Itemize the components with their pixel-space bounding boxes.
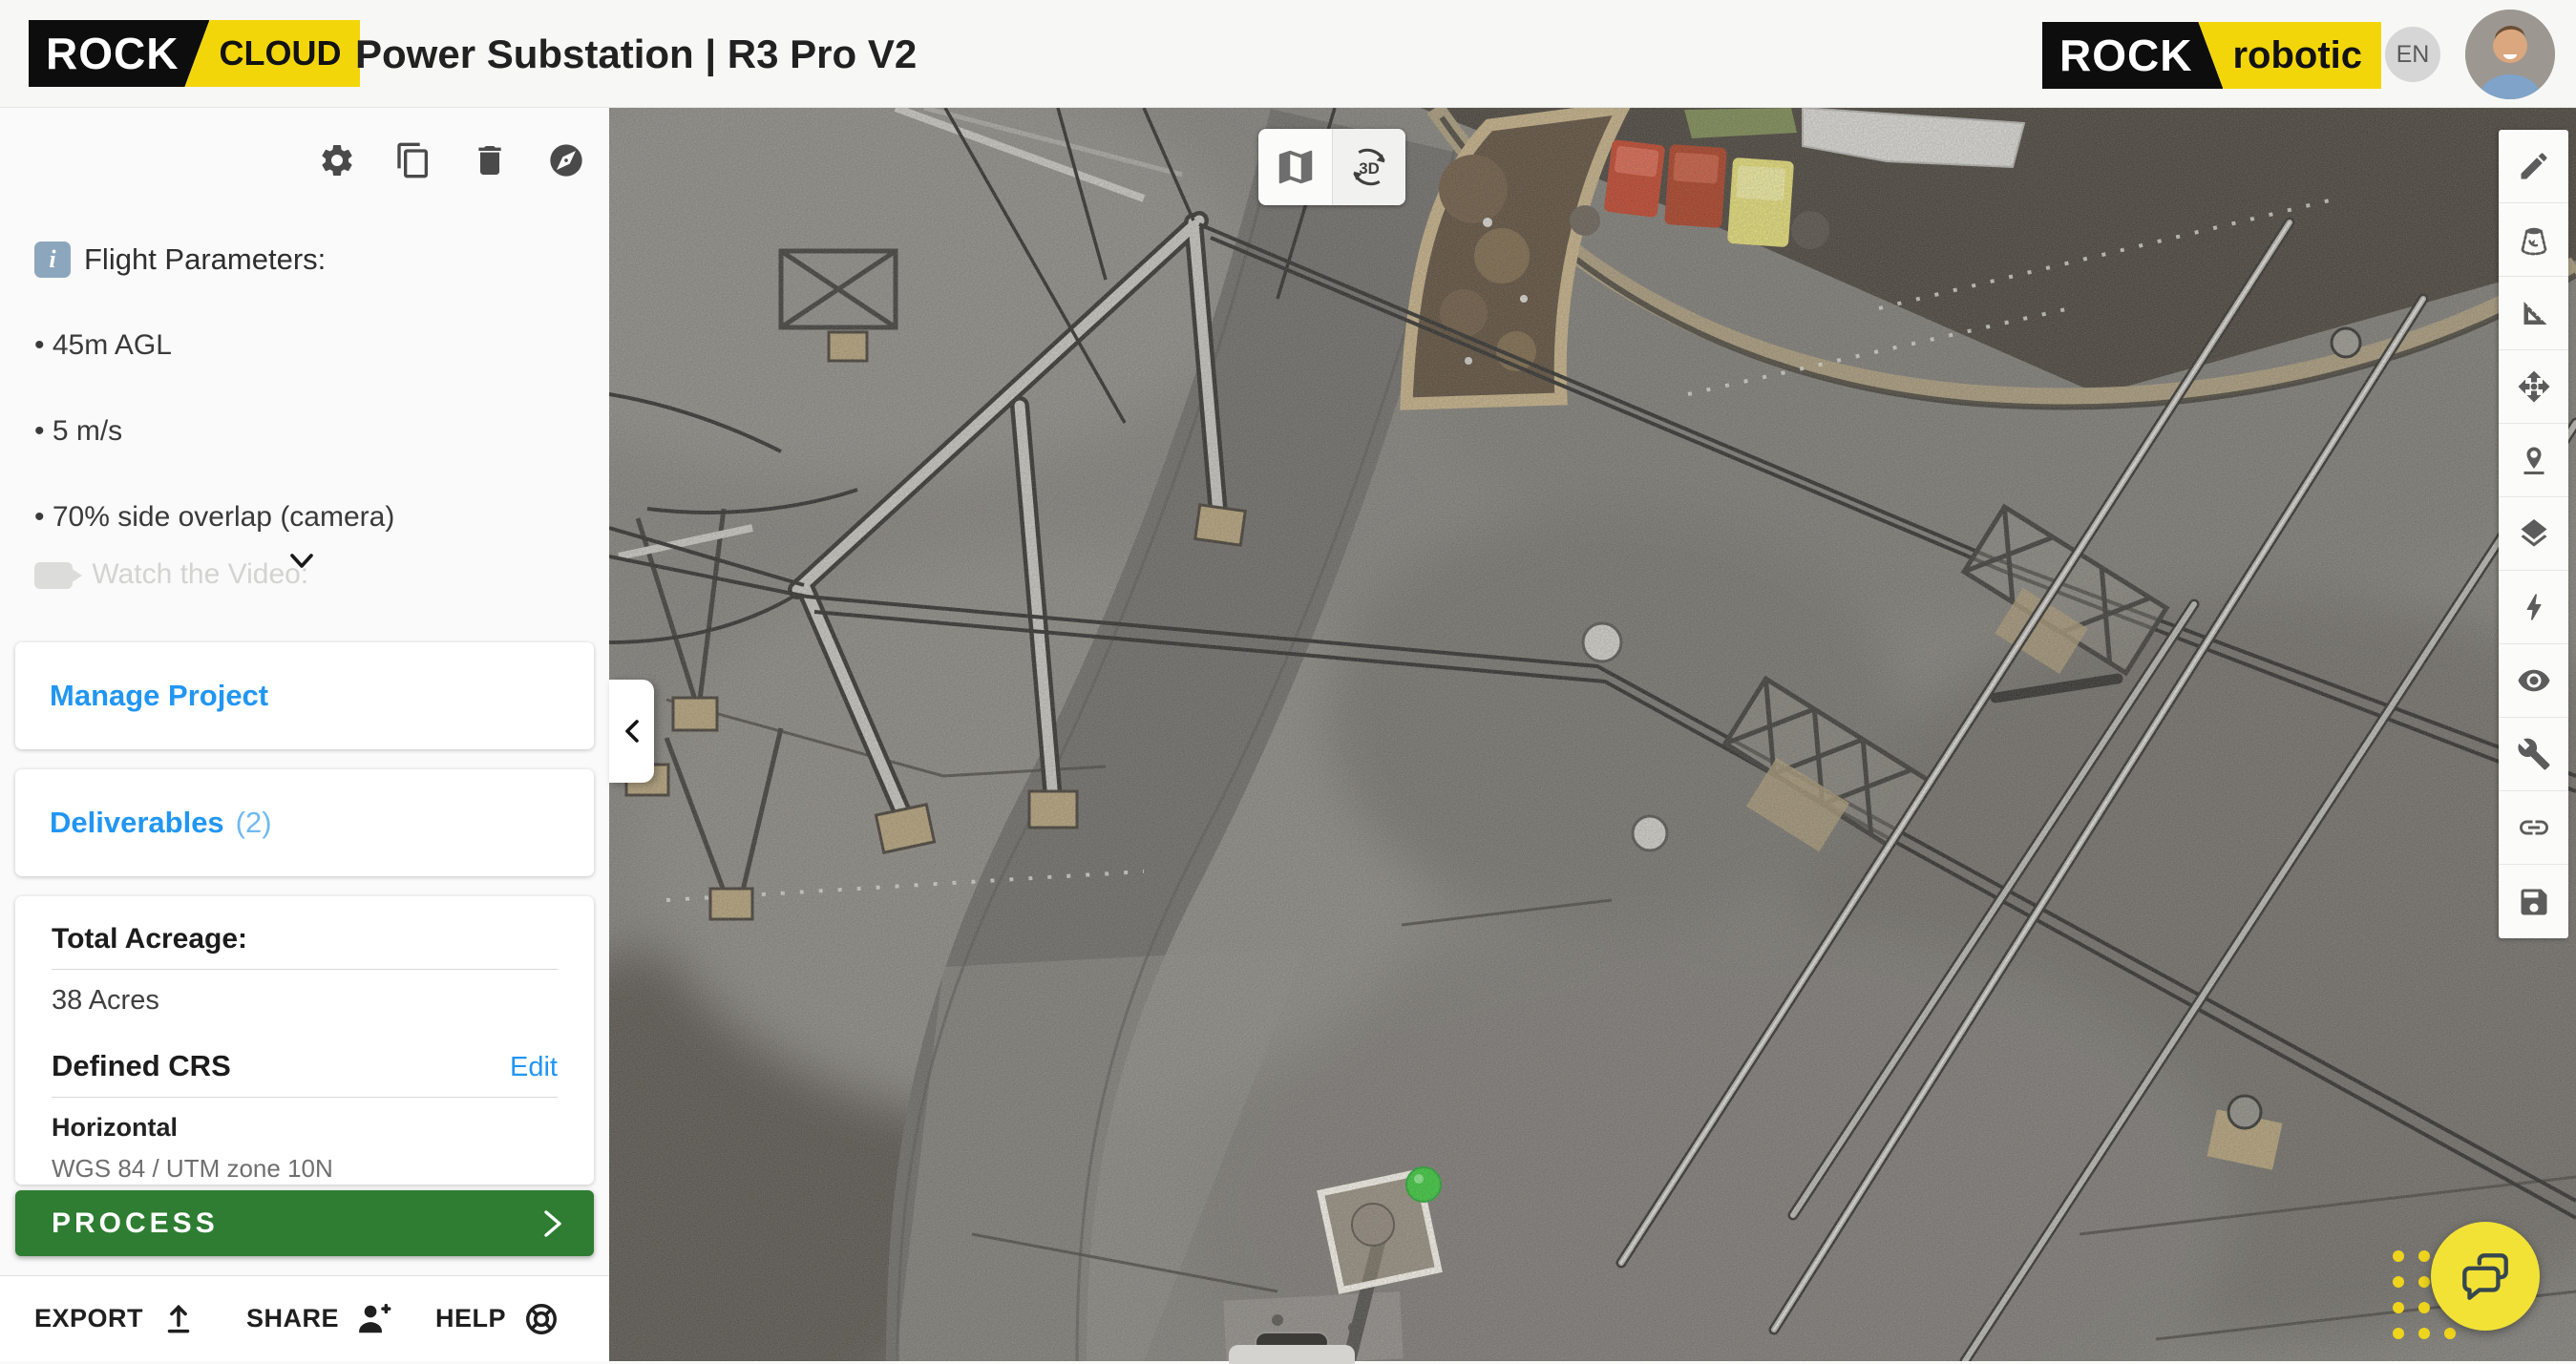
- sidebar-footer: EXPORT SHARE HELP: [0, 1275, 609, 1361]
- defined-crs-label: Defined CRS: [52, 1049, 231, 1083]
- total-acreage-label: Total Acreage:: [52, 923, 558, 955]
- area-measure-icon[interactable]: [2499, 277, 2568, 350]
- support-icon: [523, 1301, 560, 1337]
- delete-icon[interactable]: [468, 138, 512, 182]
- person-add-icon: [356, 1301, 392, 1337]
- app-header: ROCK CLOUD Power Substation | R3 Pro V2 …: [0, 0, 2576, 108]
- rock-cloud-logo-rock: ROCK: [29, 20, 209, 87]
- divider: [52, 1097, 558, 1098]
- project-toolbar: [315, 138, 588, 182]
- deliverables-count: (2): [236, 806, 272, 840]
- avatar[interactable]: [2465, 10, 2555, 99]
- watch-video-label: Watch the Video:: [92, 558, 308, 590]
- flight-parameters-heading: i Flight Parameters:: [34, 241, 326, 278]
- visibility-icon[interactable]: [2499, 644, 2568, 718]
- viewer-toolbar: [2499, 130, 2568, 938]
- language-button[interactable]: EN: [2385, 27, 2440, 82]
- rock-robotic-logo-rock: ROCK: [2042, 22, 2223, 89]
- pencil-icon[interactable]: [2499, 130, 2568, 203]
- export-button[interactable]: EXPORT: [34, 1276, 197, 1361]
- nav-widget-base[interactable]: [1229, 1345, 1355, 1364]
- manage-project-label: Manage Project: [50, 679, 268, 713]
- page-title: Power Substation | R3 Pro V2: [355, 0, 917, 108]
- rock-robotic-logo[interactable]: ROCK robotic: [2042, 22, 2381, 89]
- total-acreage-value: 38 Acres: [52, 985, 558, 1017]
- layers-icon[interactable]: [2499, 497, 2568, 571]
- watch-video-line: Watch the Video:: [34, 558, 308, 591]
- rotate-3d-label: 3D: [1359, 159, 1380, 178]
- bolt-icon[interactable]: [2499, 571, 2568, 644]
- export-label: EXPORT: [34, 1304, 143, 1333]
- map-view-button[interactable]: [1258, 129, 1332, 205]
- upload-icon: [160, 1301, 197, 1337]
- view-mode-toggle: 3D: [1258, 129, 1405, 205]
- movie-camera-icon: [34, 562, 73, 589]
- avatar-image: [2465, 10, 2555, 99]
- point-cloud-scene: [609, 108, 2576, 1361]
- rotate-3d-icon: 3D: [1347, 145, 1391, 189]
- map-icon: [1274, 145, 1318, 189]
- duplicate-icon[interactable]: [391, 138, 435, 182]
- crs-edit-link[interactable]: Edit: [510, 1052, 558, 1083]
- divider: [52, 969, 558, 970]
- flight-param-agl: • 45m AGL: [34, 329, 172, 362]
- chat-icon: [2456, 1247, 2515, 1306]
- point-cloud-viewport[interactable]: [609, 108, 2576, 1361]
- flight-param-overlap: • 70% side overlap (camera): [34, 501, 394, 534]
- help-button[interactable]: HELP: [435, 1276, 560, 1361]
- rotate-3d-button[interactable]: 3D: [1332, 129, 1405, 205]
- chevron-right-icon: [535, 1207, 569, 1241]
- rock-cloud-logo[interactable]: ROCK CLOUD: [29, 20, 360, 87]
- deliverables-card[interactable]: Deliverables (2): [15, 769, 594, 876]
- expand-description-button[interactable]: [279, 537, 325, 583]
- info-icon: i: [34, 241, 71, 278]
- process-button-label: PROCESS: [52, 1207, 219, 1240]
- project-sidebar: i Flight Parameters: • 45m AGL • 5 m/s •…: [0, 108, 609, 1361]
- process-button[interactable]: PROCESS: [15, 1190, 594, 1256]
- horizontal-label: Horizontal: [52, 1113, 558, 1143]
- move-icon[interactable]: [2499, 350, 2568, 424]
- chat-button[interactable]: [2431, 1222, 2540, 1331]
- link-icon[interactable]: [2499, 791, 2568, 865]
- volume-measure-icon[interactable]: [2499, 203, 2568, 277]
- share-label: SHARE: [246, 1304, 339, 1333]
- chevron-left-icon: [618, 717, 646, 745]
- rock-cloud-logo-cloud: CLOUD: [184, 20, 360, 87]
- deliverables-label: Deliverables: [50, 806, 224, 840]
- pin-drop-icon[interactable]: [2499, 424, 2568, 497]
- rock-robotic-logo-robotic: robotic: [2198, 22, 2381, 89]
- sidebar-collapse-button[interactable]: [609, 680, 654, 783]
- compass-icon[interactable]: [544, 138, 588, 182]
- settings-icon[interactable]: [315, 138, 359, 182]
- flight-parameters-label: Flight Parameters:: [84, 242, 326, 277]
- help-label: HELP: [435, 1304, 506, 1333]
- manage-project-card[interactable]: Manage Project: [15, 642, 594, 749]
- horizontal-crs-value: WGS 84 / UTM zone 10N: [52, 1154, 558, 1184]
- share-button[interactable]: SHARE: [246, 1276, 392, 1361]
- tools-icon[interactable]: [2499, 718, 2568, 791]
- project-details-card: Total Acreage: 38 Acres Defined CRS Edit…: [15, 896, 594, 1185]
- save-icon[interactable]: [2499, 865, 2568, 938]
- flight-param-speed: • 5 m/s: [34, 415, 122, 448]
